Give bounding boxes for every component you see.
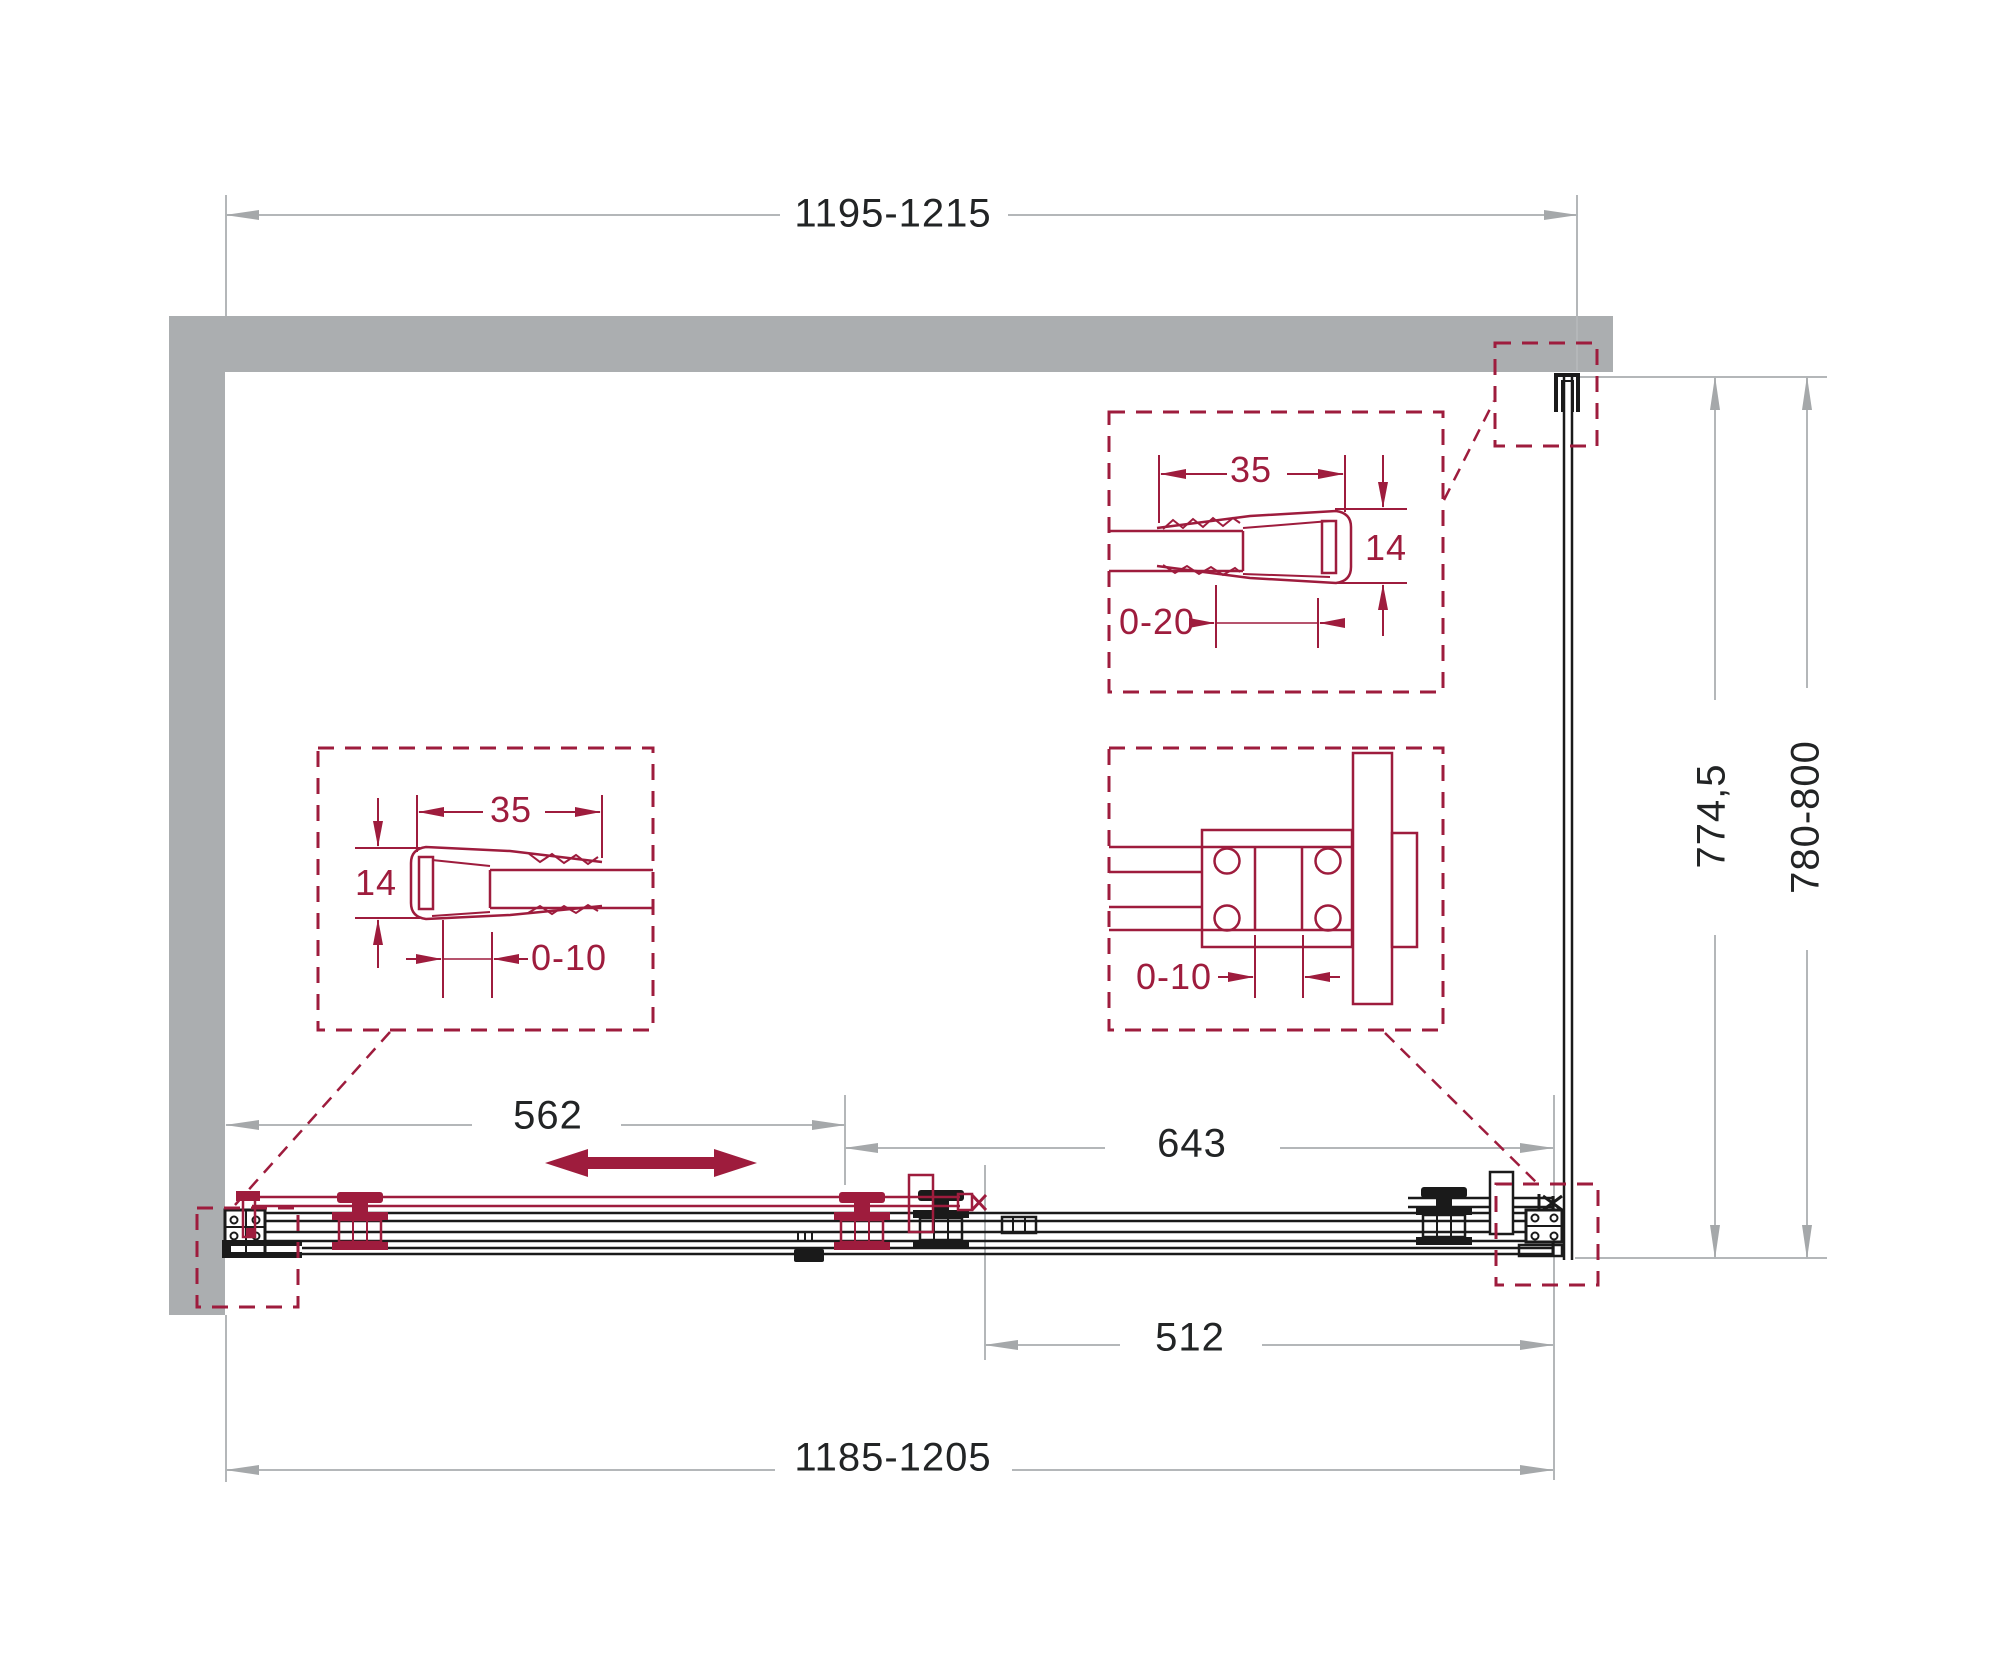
detail-c-range: 0-10 xyxy=(1136,956,1212,998)
roller-red-left xyxy=(332,1192,388,1250)
dim-door-section-width: 562 xyxy=(513,1094,583,1139)
detail-l-width: 35 xyxy=(490,789,532,831)
end-profile xyxy=(1490,1172,1513,1234)
roller-red-right xyxy=(834,1192,890,1250)
wall-bracket-left xyxy=(222,1210,302,1258)
dim-overall-width-bottom: 1185-1205 xyxy=(794,1436,991,1481)
wall-left xyxy=(169,316,225,1315)
roller-black-right xyxy=(1416,1187,1472,1245)
detail-l-range: 0-10 xyxy=(531,937,607,979)
dim-opening-width: 512 xyxy=(1155,1316,1225,1361)
detail-l-height: 14 xyxy=(355,862,397,904)
dim-fixed-section-width: 643 xyxy=(1157,1122,1227,1167)
wall-top xyxy=(169,316,1613,372)
screw-icon xyxy=(1316,906,1341,931)
side-panel-section xyxy=(1353,753,1392,1004)
wall-structure xyxy=(169,316,1613,1315)
floor-guide-center xyxy=(1002,1217,1036,1233)
detail-tr-width: 35 xyxy=(1230,449,1272,491)
detail-callout-boxes xyxy=(197,343,1598,1307)
screw-icon xyxy=(1215,849,1240,874)
detail-leader-lines xyxy=(235,401,1538,1205)
dim-overall-width-top: 1195-1215 xyxy=(794,192,991,237)
technical-drawing-canvas: 1195-1215 774,5 780-800 562 643 512 1185… xyxy=(0,0,2000,1666)
side-block xyxy=(1392,833,1417,947)
screw-icon xyxy=(1215,906,1240,931)
roller-black-center xyxy=(913,1190,969,1248)
dim-side-glass-depth: 774,5 xyxy=(1690,763,1735,868)
slide-direction-arrow-icon xyxy=(545,1149,757,1177)
dimension-lines xyxy=(226,215,1807,1470)
sliding-door-assembly xyxy=(236,1149,986,1250)
dim-side-overall-depth: 780-800 xyxy=(1784,740,1829,894)
side-glass-panel xyxy=(1556,375,1578,1260)
screw-icon xyxy=(1316,849,1341,874)
detail-c-dims xyxy=(1218,935,1340,998)
detail-tr-height: 14 xyxy=(1365,527,1407,569)
detail-tr-range: 0-20 xyxy=(1119,601,1195,643)
extension-lines xyxy=(226,195,1827,1482)
